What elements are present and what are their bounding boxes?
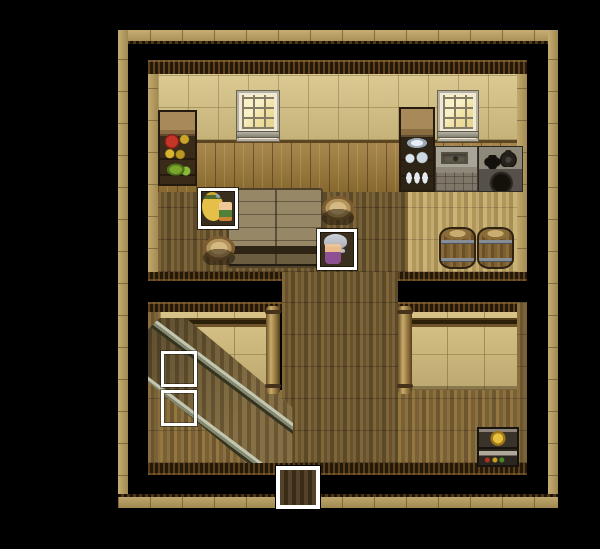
exit-door[interactable] — [276, 466, 320, 509]
storage-workbench — [477, 427, 519, 467]
window-left — [237, 91, 279, 141]
floor-bottom-edge — [148, 463, 527, 475]
stool-left — [202, 236, 236, 265]
npc-elder-woman[interactable] — [317, 229, 357, 270]
outer-wall-left — [118, 30, 128, 508]
corridor-floor — [282, 272, 398, 463]
outer-wall-right — [548, 30, 558, 508]
lower-right-ceiling-trim — [398, 302, 527, 312]
dining-table — [227, 188, 323, 268]
stool-right — [321, 196, 355, 225]
upper-room-ceiling-trim — [148, 60, 527, 74]
upper-room-frame-left — [148, 74, 158, 281]
npc-villager-blonde[interactable] — [198, 188, 238, 229]
event-marker-stairs-upper[interactable] — [161, 351, 197, 387]
pillar-left — [266, 306, 280, 394]
upper-room-edge-right — [398, 272, 527, 281]
lower-left-ceiling-trim — [148, 302, 282, 312]
dish-cupboard — [399, 107, 435, 192]
upper-room-edge-left — [148, 272, 282, 281]
event-marker-stairs-lower[interactable] — [161, 390, 197, 426]
window-right — [438, 91, 478, 141]
game-map — [0, 0, 600, 549]
barrel-right — [477, 227, 514, 269]
kitchen-counter-sink — [435, 146, 478, 192]
pillar-right — [398, 306, 412, 394]
food-shelf — [158, 110, 197, 186]
outer-wall-top — [118, 30, 558, 44]
outer-wall-bottom — [118, 494, 558, 508]
kitchen-stove — [478, 146, 523, 192]
barrel-left — [439, 227, 476, 269]
lower-right-wall — [410, 312, 517, 390]
